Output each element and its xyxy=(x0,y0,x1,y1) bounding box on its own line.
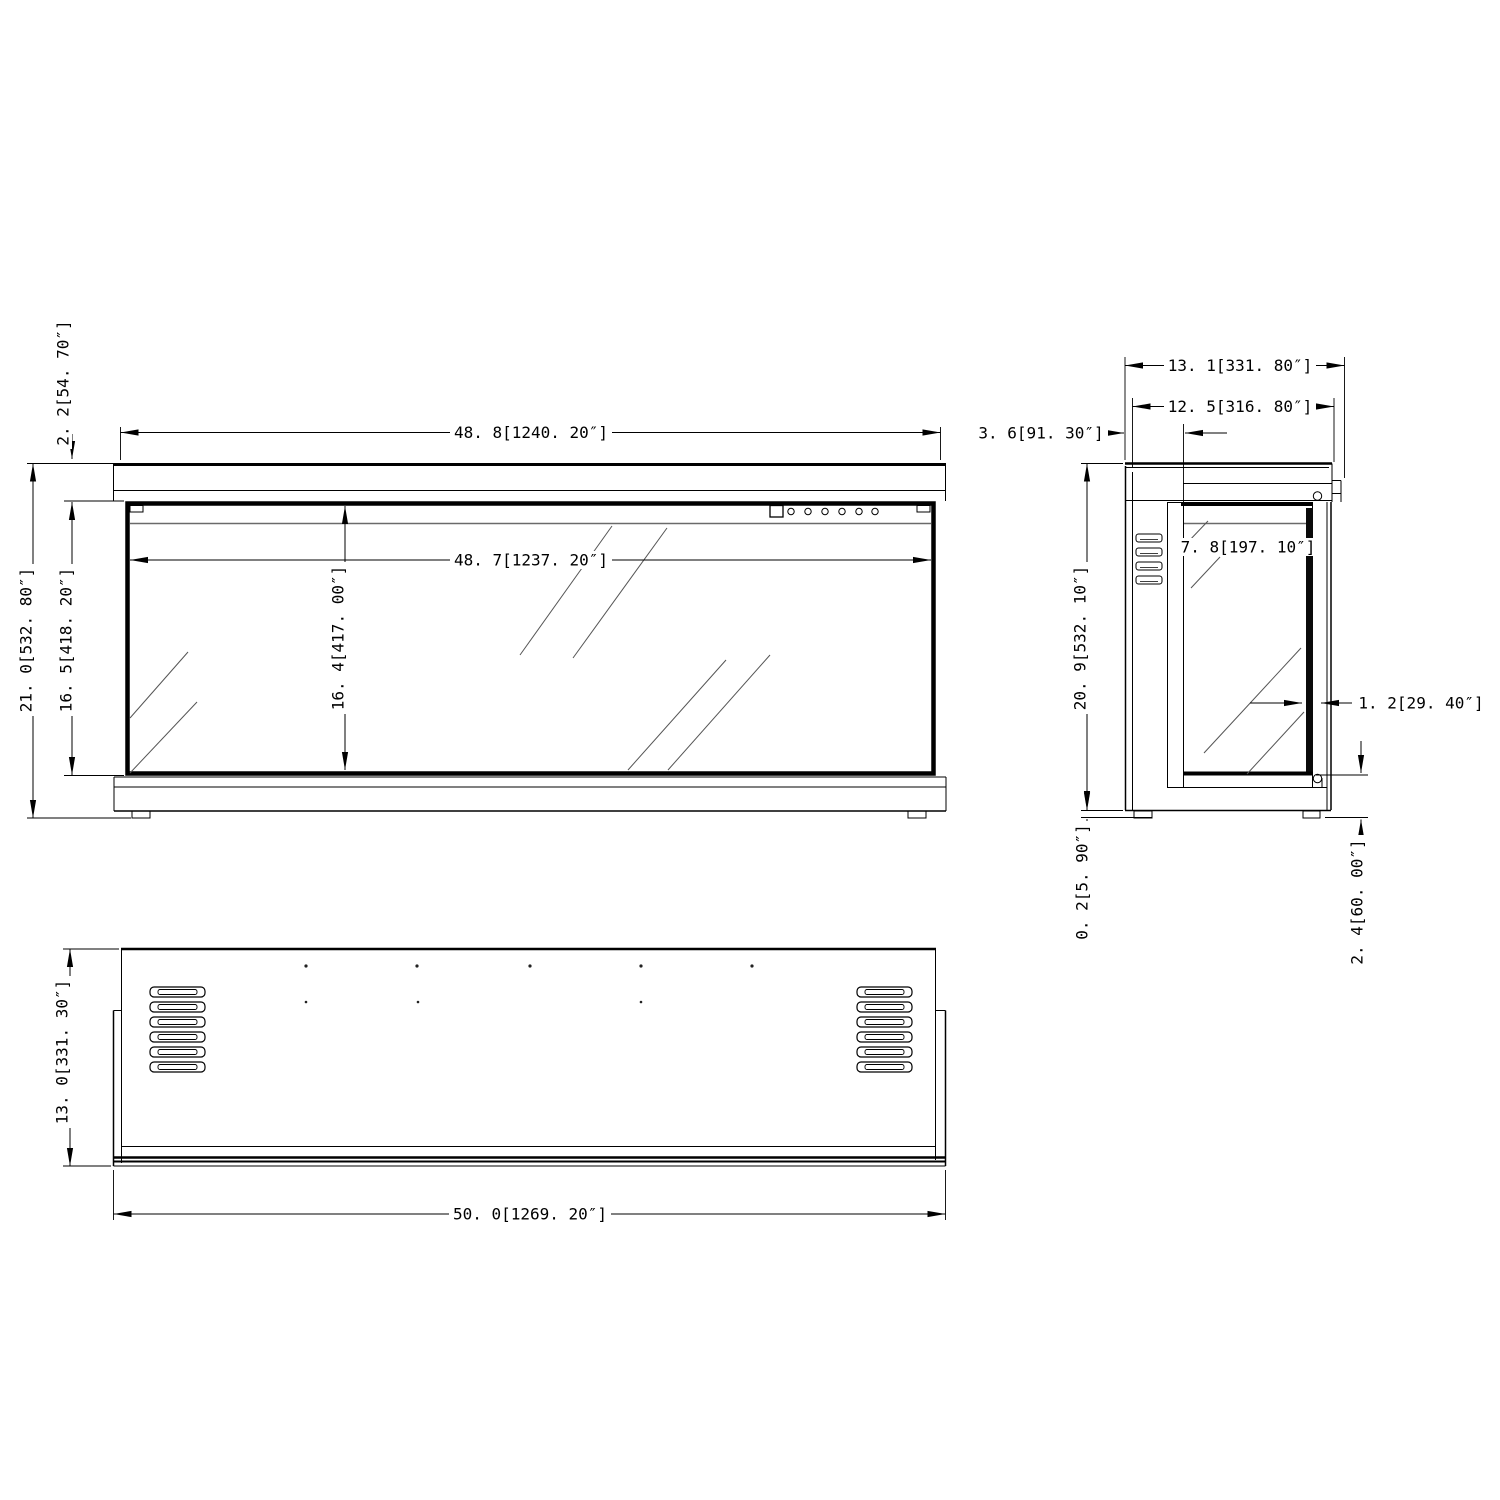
dim-side-bottom-gap: 0. 2[5. 90″] xyxy=(1073,786,1153,944)
control-button-3 xyxy=(822,508,828,514)
dim-side-depth-overall: 13. 1[331. 80″] xyxy=(1125,356,1345,478)
side-body xyxy=(1125,466,1331,818)
control-button-2 xyxy=(805,508,811,514)
dim-front-frame-height-label: 16. 5[418. 20″] xyxy=(57,568,76,713)
bottom-screw-marks xyxy=(304,964,753,1003)
dim-side-height-label: 20. 9[532. 10″] xyxy=(1071,566,1090,711)
dim-front-glass-width: 48. 7[1237. 20″] xyxy=(130,551,931,570)
dim-side-bottom-gap-label: 0. 2[5. 90″] xyxy=(1073,824,1092,940)
dim-front-overall-height-label: 21. 0[532. 80″] xyxy=(17,568,36,713)
front-frame xyxy=(128,504,934,774)
dim-front-cap-width: 48. 8[1240. 20″] xyxy=(121,423,941,460)
side-top-cap xyxy=(1125,464,1341,503)
bottom-vents-right xyxy=(857,987,912,1072)
dim-front-cap-width-label: 48. 8[1240. 20″] xyxy=(454,423,608,442)
dim-side-glass-thickness: 1. 2[29. 40″] xyxy=(1250,694,1488,713)
dim-bottom-depth: 13. 0[331. 30″] xyxy=(53,949,120,1166)
dim-front-cap-height: 2. 2[54. 70″] xyxy=(54,316,73,459)
drawing-canvas: 48. 8[1240. 20″] 48. 7[1237. 20″] 16. 4[… xyxy=(0,0,1500,1500)
bottom-vents-left xyxy=(150,987,205,1072)
front-corner-tab-right xyxy=(917,506,930,513)
dim-front-frame-height: 16. 5[418. 20″] xyxy=(57,501,125,776)
dim-front-glass-height-label: 16. 4[417. 00″] xyxy=(329,566,348,711)
dim-side-door-depth-label: 7. 8[197. 10″] xyxy=(1181,538,1316,557)
side-glass-reflections xyxy=(1187,521,1304,774)
side-view: 13. 1[331. 80″] 12. 5[316. 80″] 3. 6[91.… xyxy=(975,356,1488,968)
control-button-4 xyxy=(839,508,845,514)
side-vents xyxy=(1136,534,1162,584)
dim-bottom-depth-label: 13. 0[331. 30″] xyxy=(53,980,72,1125)
dim-front-glass-height: 16. 4[417. 00″] xyxy=(329,506,348,770)
side-door xyxy=(1168,492,1328,788)
dim-side-rear-clearance: 2. 4[60. 00″] xyxy=(1316,741,1368,968)
front-base xyxy=(114,777,946,818)
bottom-view: 13. 0[331. 30″] 50. 0[1269. 20″] xyxy=(53,949,946,1224)
dim-side-front-offset-label: 3. 6[91. 30″] xyxy=(978,424,1103,443)
dim-side-door-depth: 7. 8[197. 10″] xyxy=(1172,538,1324,557)
dim-front-glass-width-label: 48. 7[1237. 20″] xyxy=(454,551,608,570)
control-button-6 xyxy=(872,508,878,514)
front-corner-tab-left xyxy=(130,506,143,513)
front-foot-left xyxy=(132,811,150,818)
technical-drawing: 48. 8[1240. 20″] 48. 7[1237. 20″] 16. 4[… xyxy=(0,0,1500,1500)
front-foot-right xyxy=(908,811,926,818)
control-display-square xyxy=(770,506,783,518)
side-hinge-pin-bottom xyxy=(1313,774,1321,782)
control-button-1 xyxy=(788,508,794,514)
front-view: 48. 8[1240. 20″] 48. 7[1237. 20″] 16. 4[… xyxy=(17,316,947,818)
side-foot-left xyxy=(1134,811,1152,818)
dim-side-depth-body-label: 12. 5[316. 80″] xyxy=(1168,397,1313,416)
bottom-outline xyxy=(114,949,946,1166)
dim-bottom-width-label: 50. 0[1269. 20″] xyxy=(453,1205,607,1224)
front-control-panel xyxy=(770,506,878,518)
dim-side-glass-thickness-label: 1. 2[29. 40″] xyxy=(1358,694,1483,713)
front-top-cap xyxy=(113,464,946,501)
control-button-5 xyxy=(856,508,862,514)
side-foot-right xyxy=(1303,811,1320,818)
dim-side-depth-body: 12. 5[316. 80″] xyxy=(1133,397,1335,468)
side-hinge-pin-top xyxy=(1313,492,1321,500)
dim-side-depth-overall-label: 13. 1[331. 80″] xyxy=(1168,356,1313,375)
dim-front-cap-height-label: 2. 2[54. 70″] xyxy=(54,320,73,445)
dim-side-rear-clearance-label: 2. 4[60. 00″] xyxy=(1348,839,1367,964)
dim-side-height: 20. 9[532. 10″] xyxy=(1071,464,1124,811)
dim-bottom-width: 50. 0[1269. 20″] xyxy=(114,1170,946,1224)
